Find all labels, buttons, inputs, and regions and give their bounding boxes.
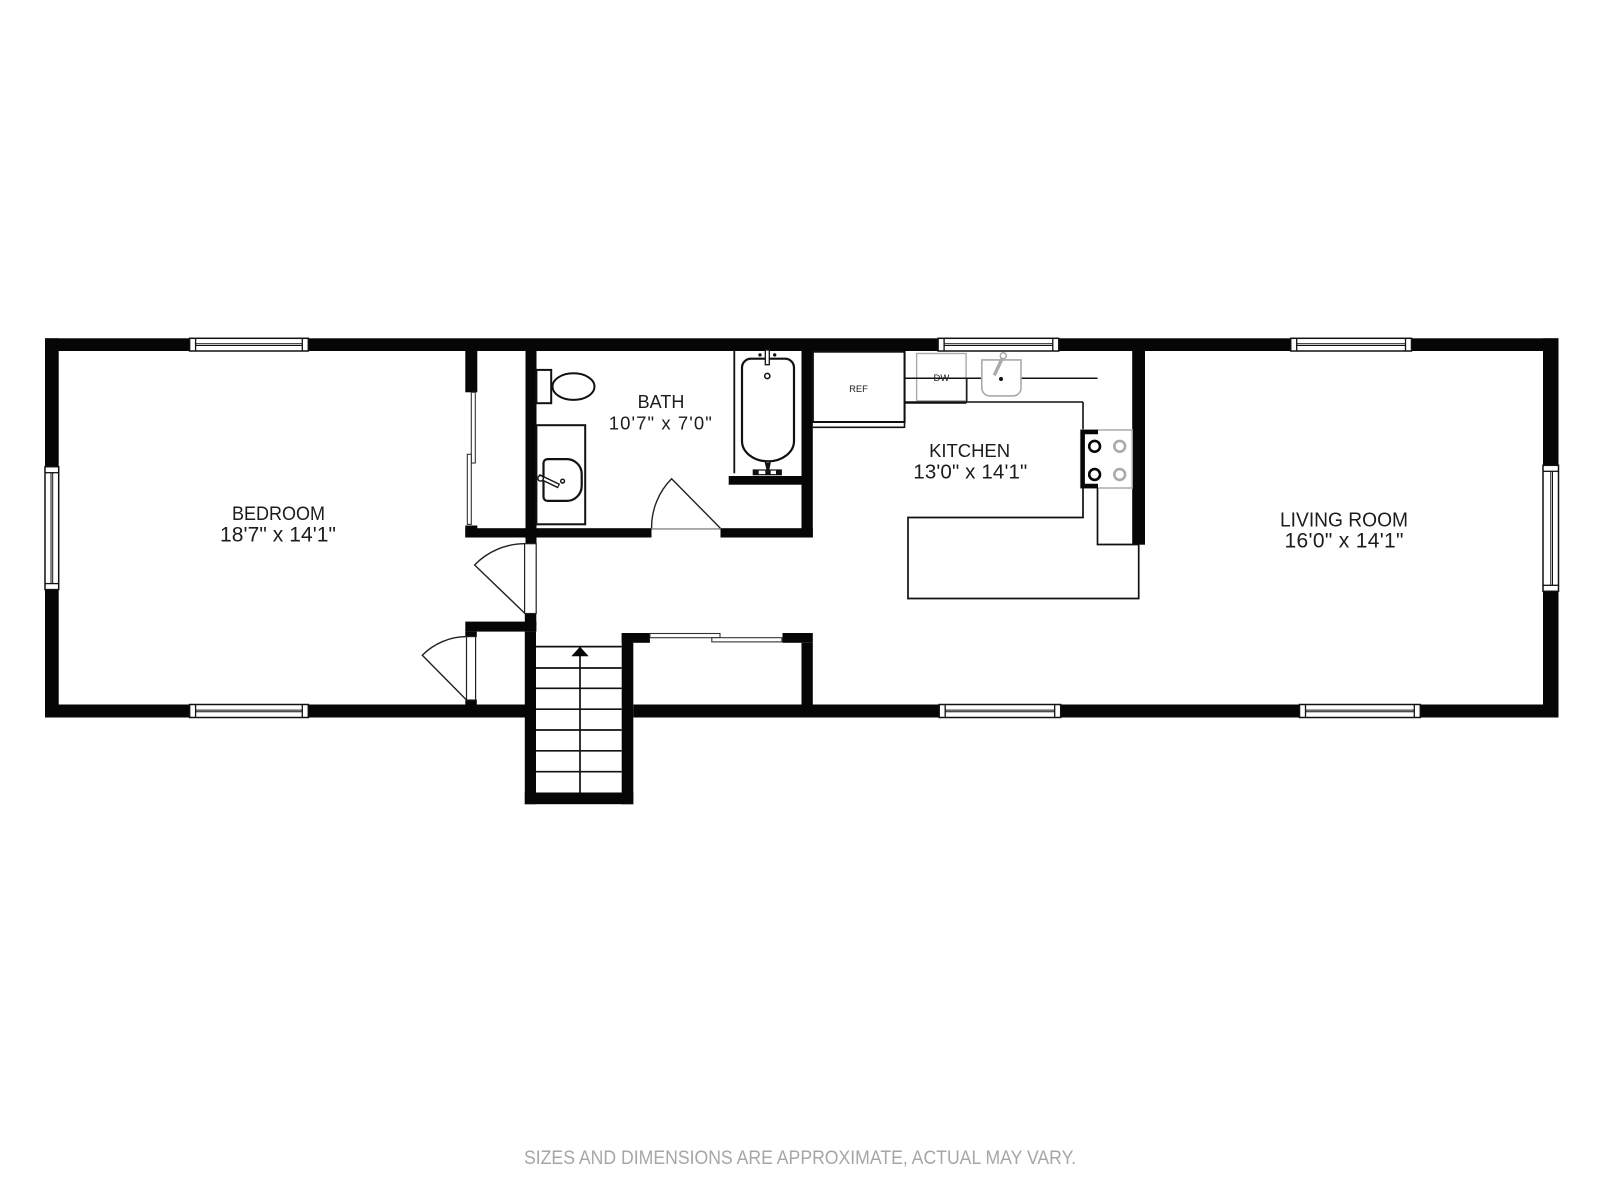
svg-text:REF: REF	[849, 383, 868, 394]
svg-text:SIZES AND DIMENSIONS ARE APPRO: SIZES AND DIMENSIONS ARE APPROXIMATE, AC…	[524, 1148, 1076, 1169]
svg-text:18'7" x 14'1": 18'7" x 14'1"	[220, 524, 336, 547]
svg-text:DW: DW	[934, 373, 950, 384]
svg-text:BATH: BATH	[638, 392, 685, 412]
svg-text:BEDROOM: BEDROOM	[232, 504, 325, 525]
svg-text:13'0" x 14'1": 13'0" x 14'1"	[913, 461, 1027, 484]
svg-text:16'0" x 14'1": 16'0" x 14'1"	[1285, 530, 1404, 553]
svg-text:LIVING ROOM: LIVING ROOM	[1280, 510, 1408, 532]
svg-text:10'7" x 7'0": 10'7" x 7'0"	[609, 412, 712, 433]
svg-text:KITCHEN: KITCHEN	[929, 440, 1010, 461]
